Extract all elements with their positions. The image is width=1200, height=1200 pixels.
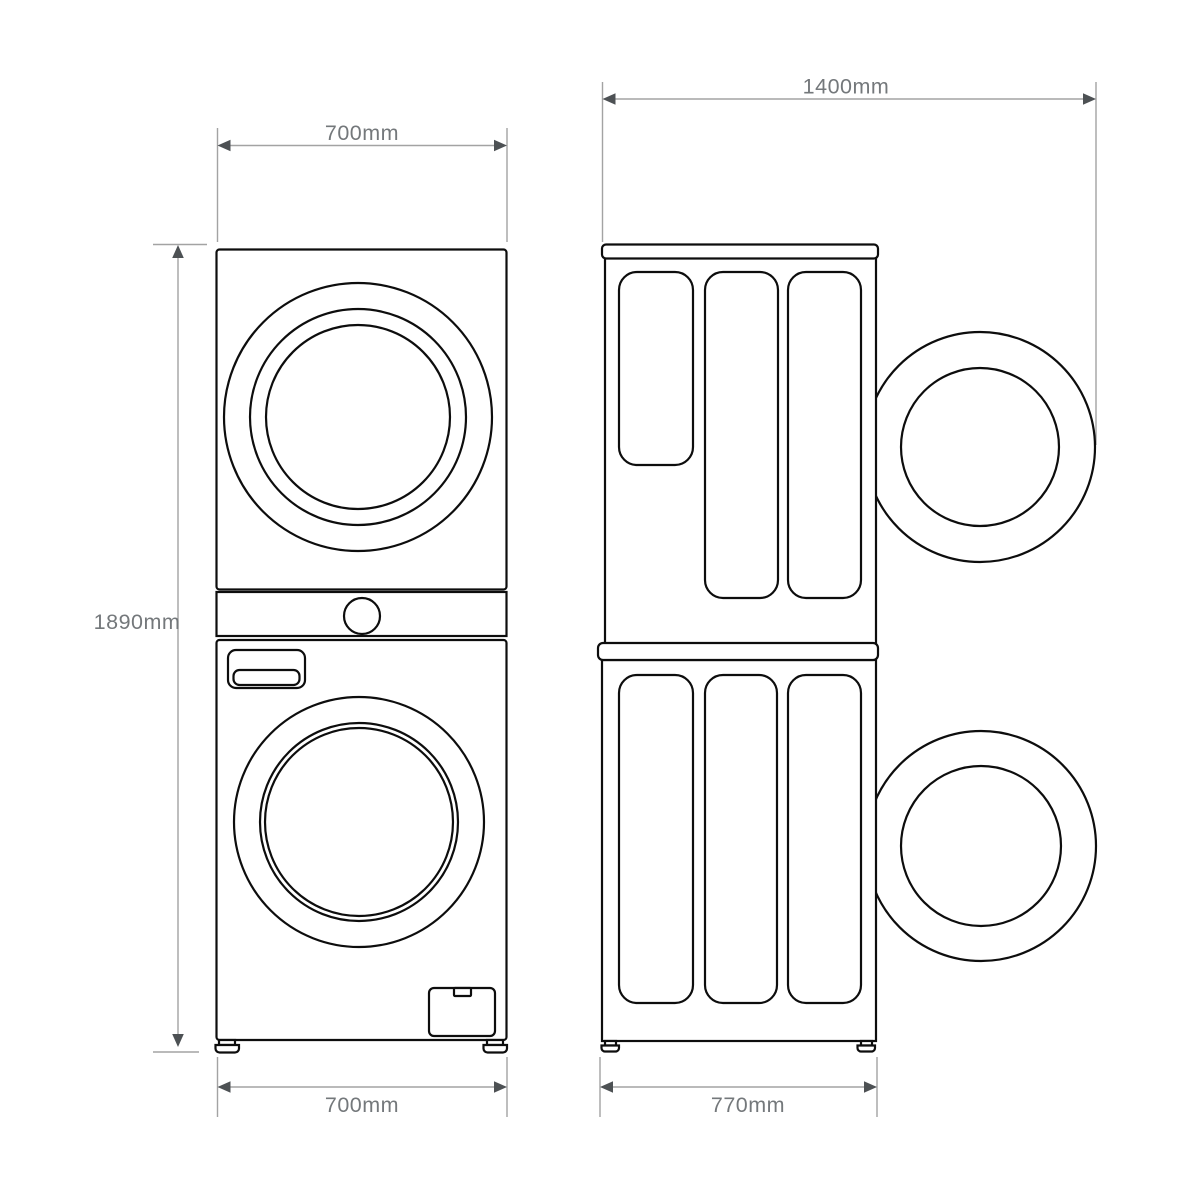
arrowhead-left-icon xyxy=(600,1081,613,1093)
arrowhead-right-icon xyxy=(494,1081,507,1093)
door-swing-ring-top xyxy=(865,332,1095,562)
front-dryer-body xyxy=(217,250,507,590)
side-washer-vent-slot xyxy=(619,675,693,1003)
side-dryer-vent-slot xyxy=(705,272,778,598)
dim-front-bottom-width: 700mm xyxy=(218,1057,508,1117)
service-flap-clip xyxy=(454,988,471,996)
side-foot-right xyxy=(858,1041,876,1052)
front-foot-right xyxy=(484,1040,508,1053)
dim-front-top-width: 700mm xyxy=(218,121,508,242)
foot-base xyxy=(484,1045,508,1053)
dim-label-front-height: 1890mm xyxy=(94,610,181,634)
side-dryer-vent-slot xyxy=(788,272,861,598)
side-view xyxy=(598,245,1096,1052)
door-swing-ring-bottom xyxy=(866,731,1096,961)
arrowhead-up-icon xyxy=(172,245,184,258)
dimension-diagram-page: 700mm 1890mm 700mm 1400mm xyxy=(0,0,1200,1200)
foot-base xyxy=(858,1046,876,1052)
dim-side-bottom-depth: 770mm xyxy=(600,1057,877,1117)
side-washer-vent-slot xyxy=(788,675,861,1003)
dim-label-front-top-width: 700mm xyxy=(325,121,399,145)
control-knob xyxy=(344,598,380,634)
dim-label-side-depth-door-open: 1400mm xyxy=(803,75,890,99)
dim-label-side-bottom-depth: 770mm xyxy=(711,1093,785,1117)
arrowhead-right-icon xyxy=(1083,93,1096,105)
appliance-dimension-drawing: 700mm 1890mm 700mm 1400mm xyxy=(0,0,1200,1200)
side-washer-vent-slot xyxy=(705,675,777,1003)
side-dryer-top-lid xyxy=(602,245,878,259)
front-washer-body xyxy=(217,640,507,1040)
door-ring-inner-circle xyxy=(901,766,1061,926)
foot-base xyxy=(216,1045,240,1053)
arrowhead-right-icon xyxy=(864,1081,877,1093)
front-view xyxy=(216,250,508,1053)
detergent-drawer-handle xyxy=(234,670,300,685)
dim-label-front-bottom-width: 700mm xyxy=(325,1093,399,1117)
foot-base xyxy=(602,1046,620,1052)
door-ring-outer-circle xyxy=(865,332,1095,562)
service-flap xyxy=(429,988,495,1036)
side-dryer-vent-slot-short xyxy=(619,272,693,465)
side-foot-left xyxy=(602,1041,620,1052)
arrowhead-right-icon xyxy=(494,140,507,152)
arrowhead-left-icon xyxy=(218,1081,231,1093)
arrowhead-left-icon xyxy=(218,140,231,152)
side-washer-top-lid xyxy=(598,643,878,660)
door-ring-inner-circle xyxy=(901,368,1059,526)
front-foot-left xyxy=(216,1040,240,1053)
dim-front-height: 1890mm xyxy=(94,245,207,1053)
detergent-drawer xyxy=(228,650,305,688)
arrowhead-down-icon xyxy=(172,1034,184,1047)
arrowhead-left-icon xyxy=(603,93,616,105)
